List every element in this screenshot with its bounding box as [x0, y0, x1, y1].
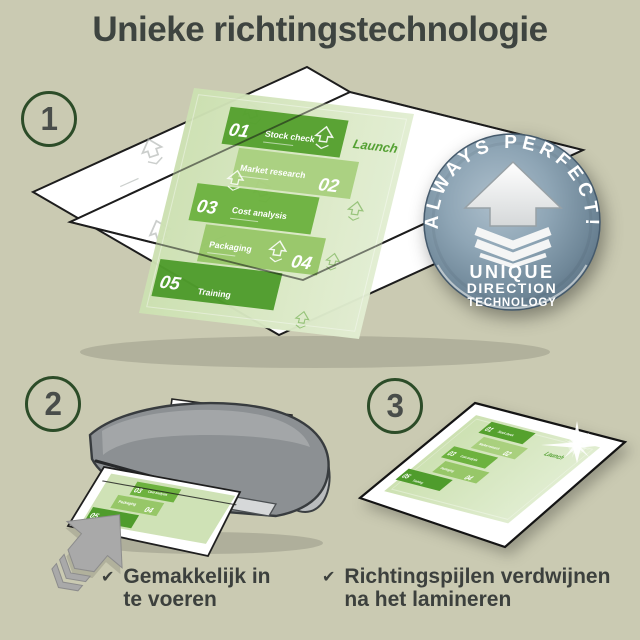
caption-arrows-disappear: ✔ Richtingspijlen verdwijnen na het lami…	[322, 566, 610, 611]
page-title: Unieke richtingstechnologie	[0, 10, 640, 50]
caption-line: na het lamineren	[344, 589, 610, 612]
caption-line: te voeren	[123, 589, 270, 612]
step-number: 1	[40, 100, 57, 138]
badge-line2: DIRECTION	[467, 280, 558, 296]
step-circle-2: 2	[25, 376, 81, 432]
badge-line3: TECHNOLOGY	[467, 297, 556, 309]
step-number: 2	[44, 385, 61, 423]
check-icon: ✔	[322, 570, 335, 611]
check-icon: ✔	[101, 570, 114, 611]
product-infographic: Launch 01 Stock check Market research 02…	[0, 0, 640, 640]
caption-easy-feed: ✔ Gemakkelijk in te voeren	[101, 566, 271, 611]
stack-shadow	[80, 336, 550, 368]
caption-line: Richtingspijlen verdwijnen	[344, 566, 610, 589]
badge-line1: UNIQUE	[469, 262, 554, 282]
step-circle-1: 1	[21, 91, 77, 147]
always-perfect-badge: ALWAYS PERFECT! UNIQUE DIRECTION TECHNOL…	[412, 130, 612, 330]
step-number: 3	[386, 387, 403, 425]
step-circle-3: 3	[367, 378, 423, 434]
caption-line: Gemakkelijk in	[123, 566, 270, 589]
